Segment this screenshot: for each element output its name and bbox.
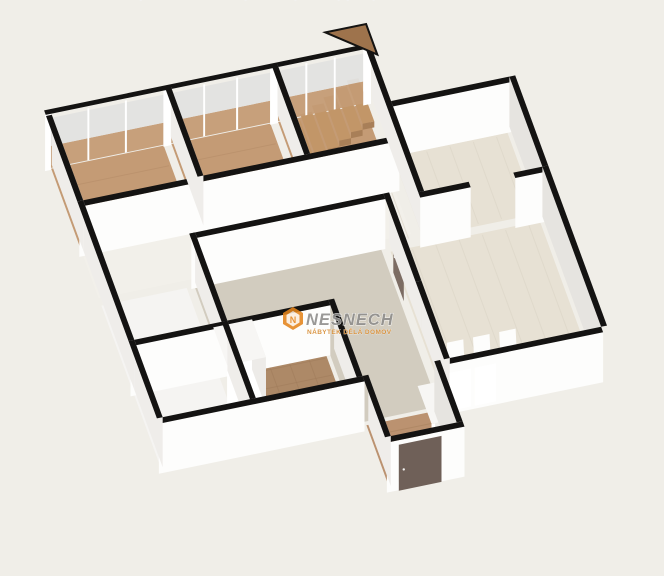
hexagon-letter: N [290, 315, 297, 325]
door-handle [403, 468, 405, 470]
brand-tagline: NÁBYTEK DĚLÁ DOMOV [307, 327, 392, 336]
door [399, 436, 442, 491]
window-mullion [125, 100, 127, 152]
floorplan-3d-render: N NESNECH NÁBYTEK DĚLÁ DOMOV [0, 0, 664, 576]
kitchen-south-wall-face [420, 187, 471, 247]
window-mullion [203, 84, 205, 136]
wall-light-pane [475, 363, 496, 405]
brand-name: NESNECH [306, 311, 394, 329]
window-mullion [87, 108, 89, 160]
kitchen-south-wall-face [515, 172, 544, 228]
window-mullion [236, 77, 238, 129]
window-mullion [334, 57, 336, 109]
window-mullion [305, 63, 307, 115]
